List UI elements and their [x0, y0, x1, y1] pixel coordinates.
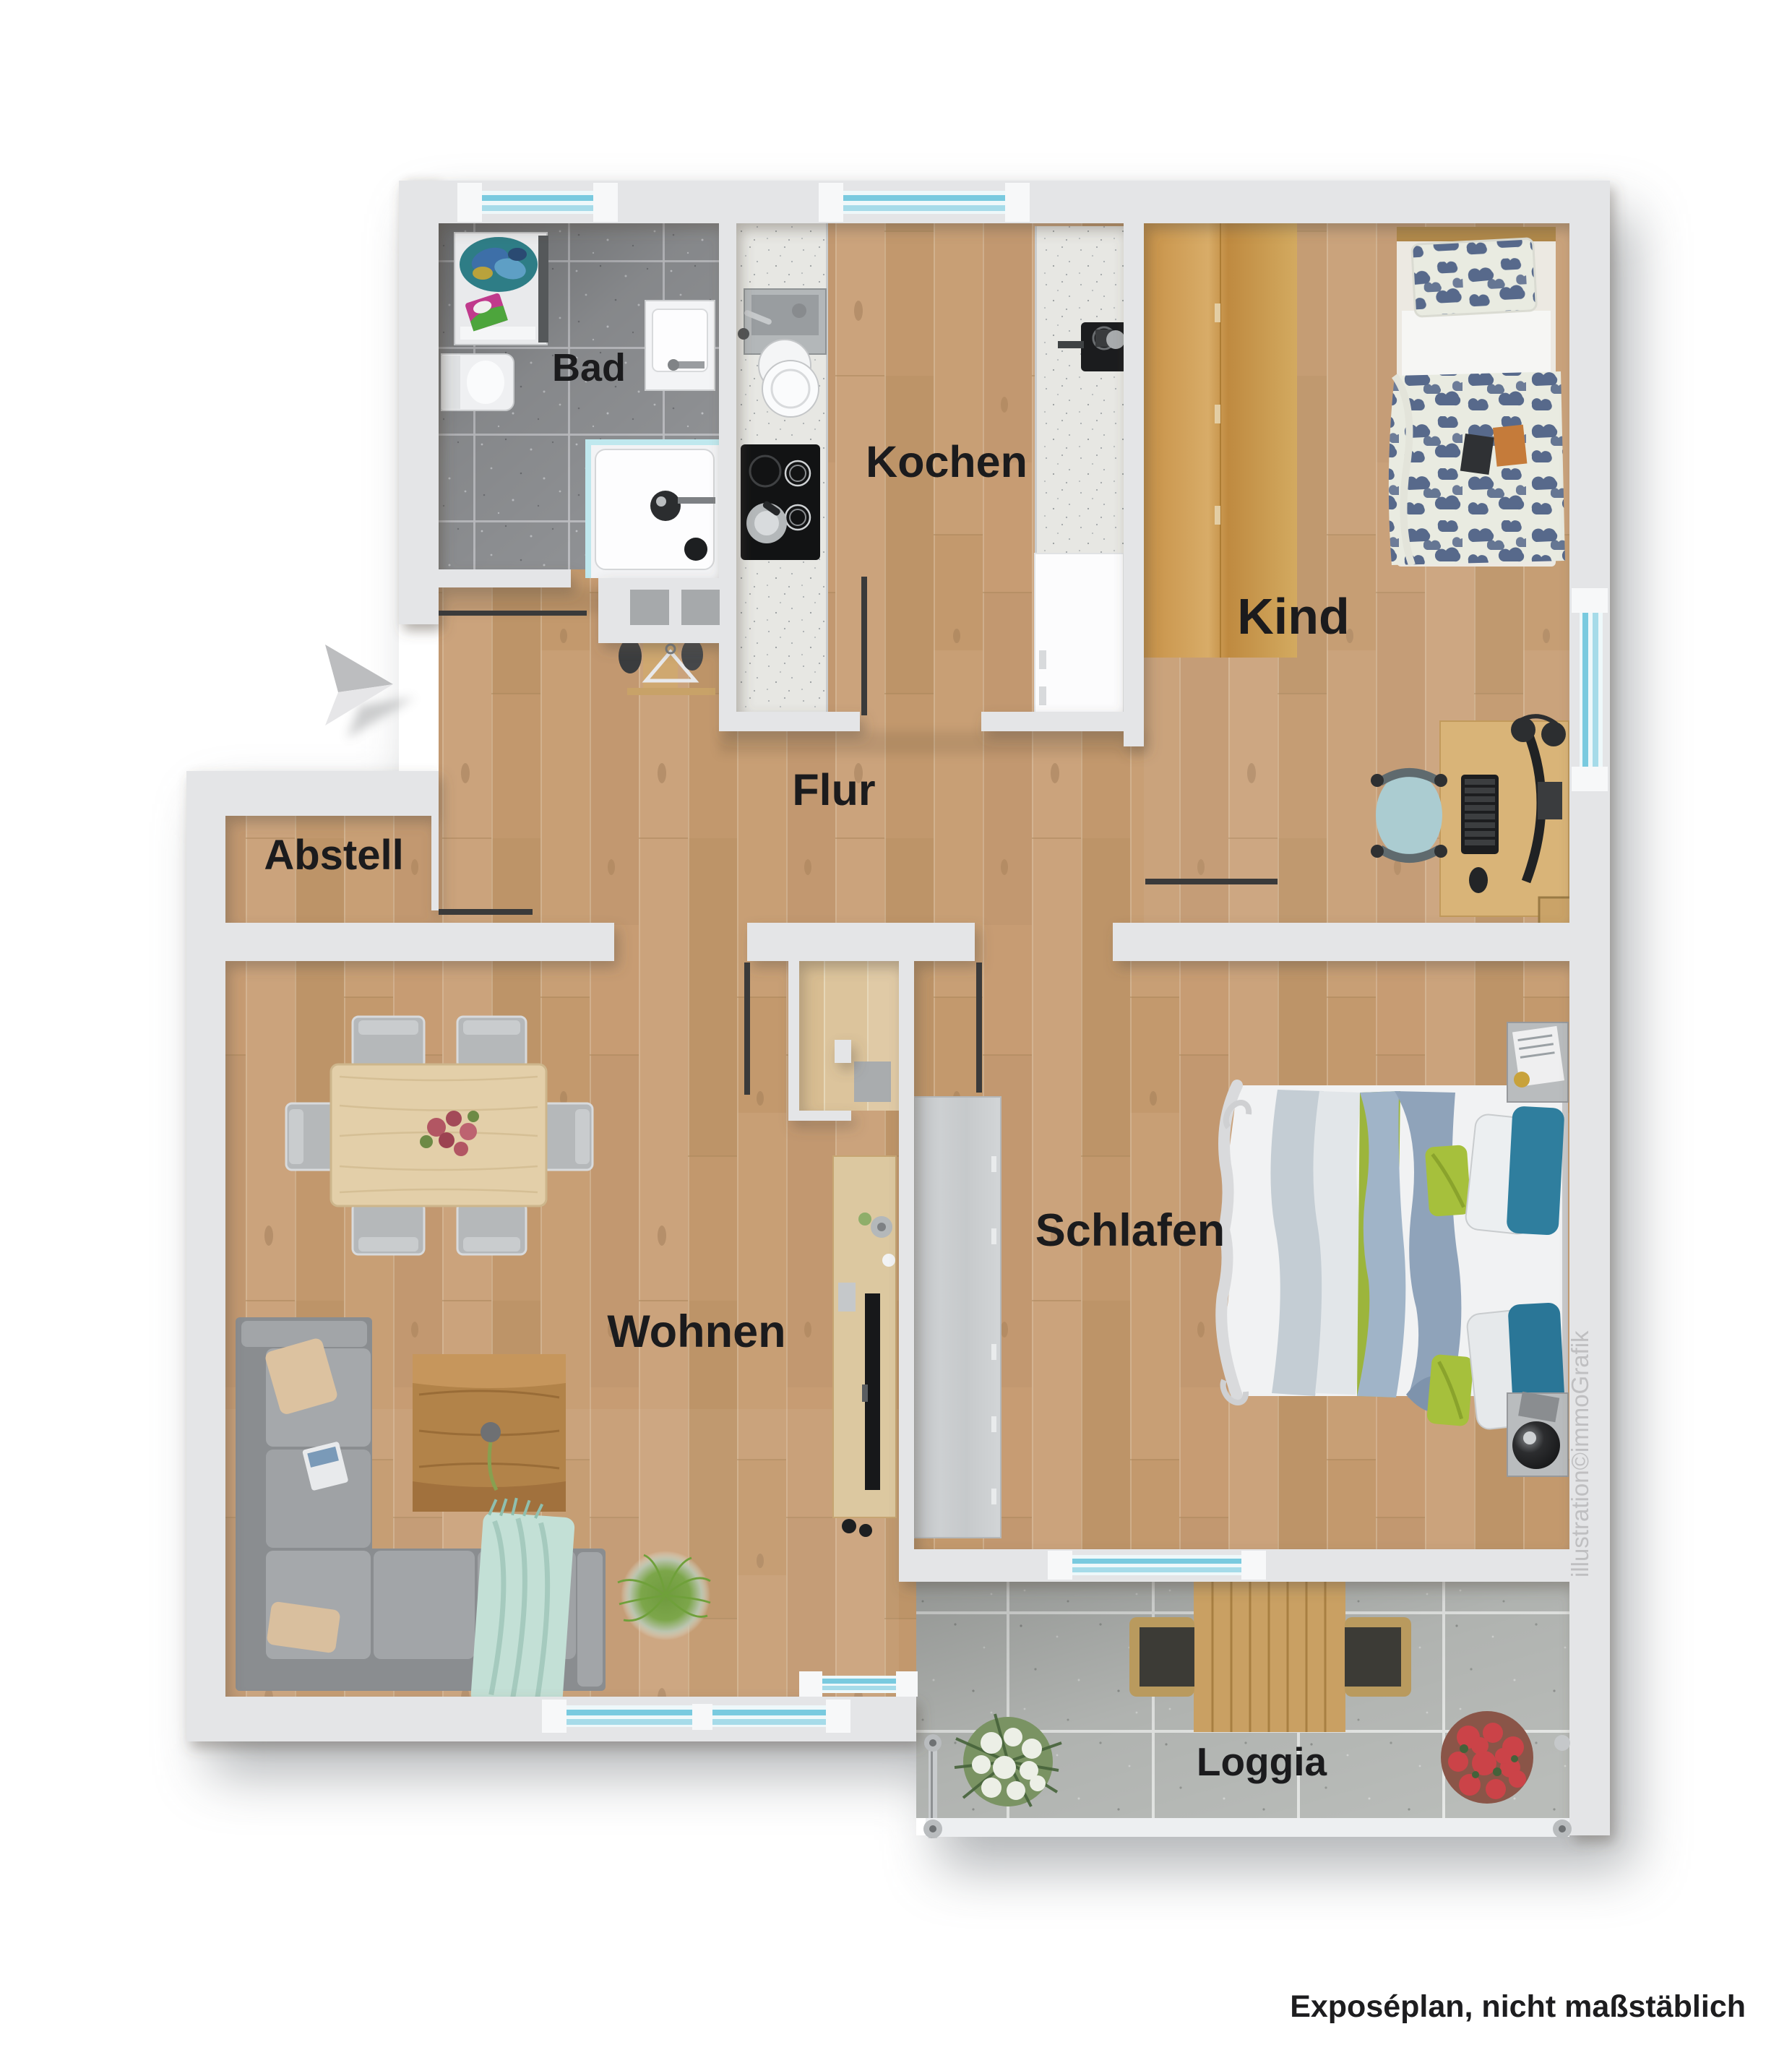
- svg-text:Kind: Kind: [1237, 588, 1350, 645]
- svg-text:Schlafen: Schlafen: [1035, 1205, 1225, 1256]
- svg-text:Kochen: Kochen: [866, 437, 1028, 486]
- svg-text:Flur: Flur: [792, 765, 875, 814]
- svg-text:Loggia: Loggia: [1197, 1739, 1327, 1784]
- svg-text:Abstell: Abstell: [264, 832, 403, 879]
- svg-text:illustration©immoGrafik: illustration©immoGrafik: [1567, 1330, 1593, 1577]
- svg-text:Wohnen: Wohnen: [607, 1306, 785, 1357]
- svg-text:Exposéplan, nicht maßstäblich: Exposéplan, nicht maßstäblich: [1290, 1989, 1746, 2024]
- svg-text:Bad: Bad: [552, 346, 626, 389]
